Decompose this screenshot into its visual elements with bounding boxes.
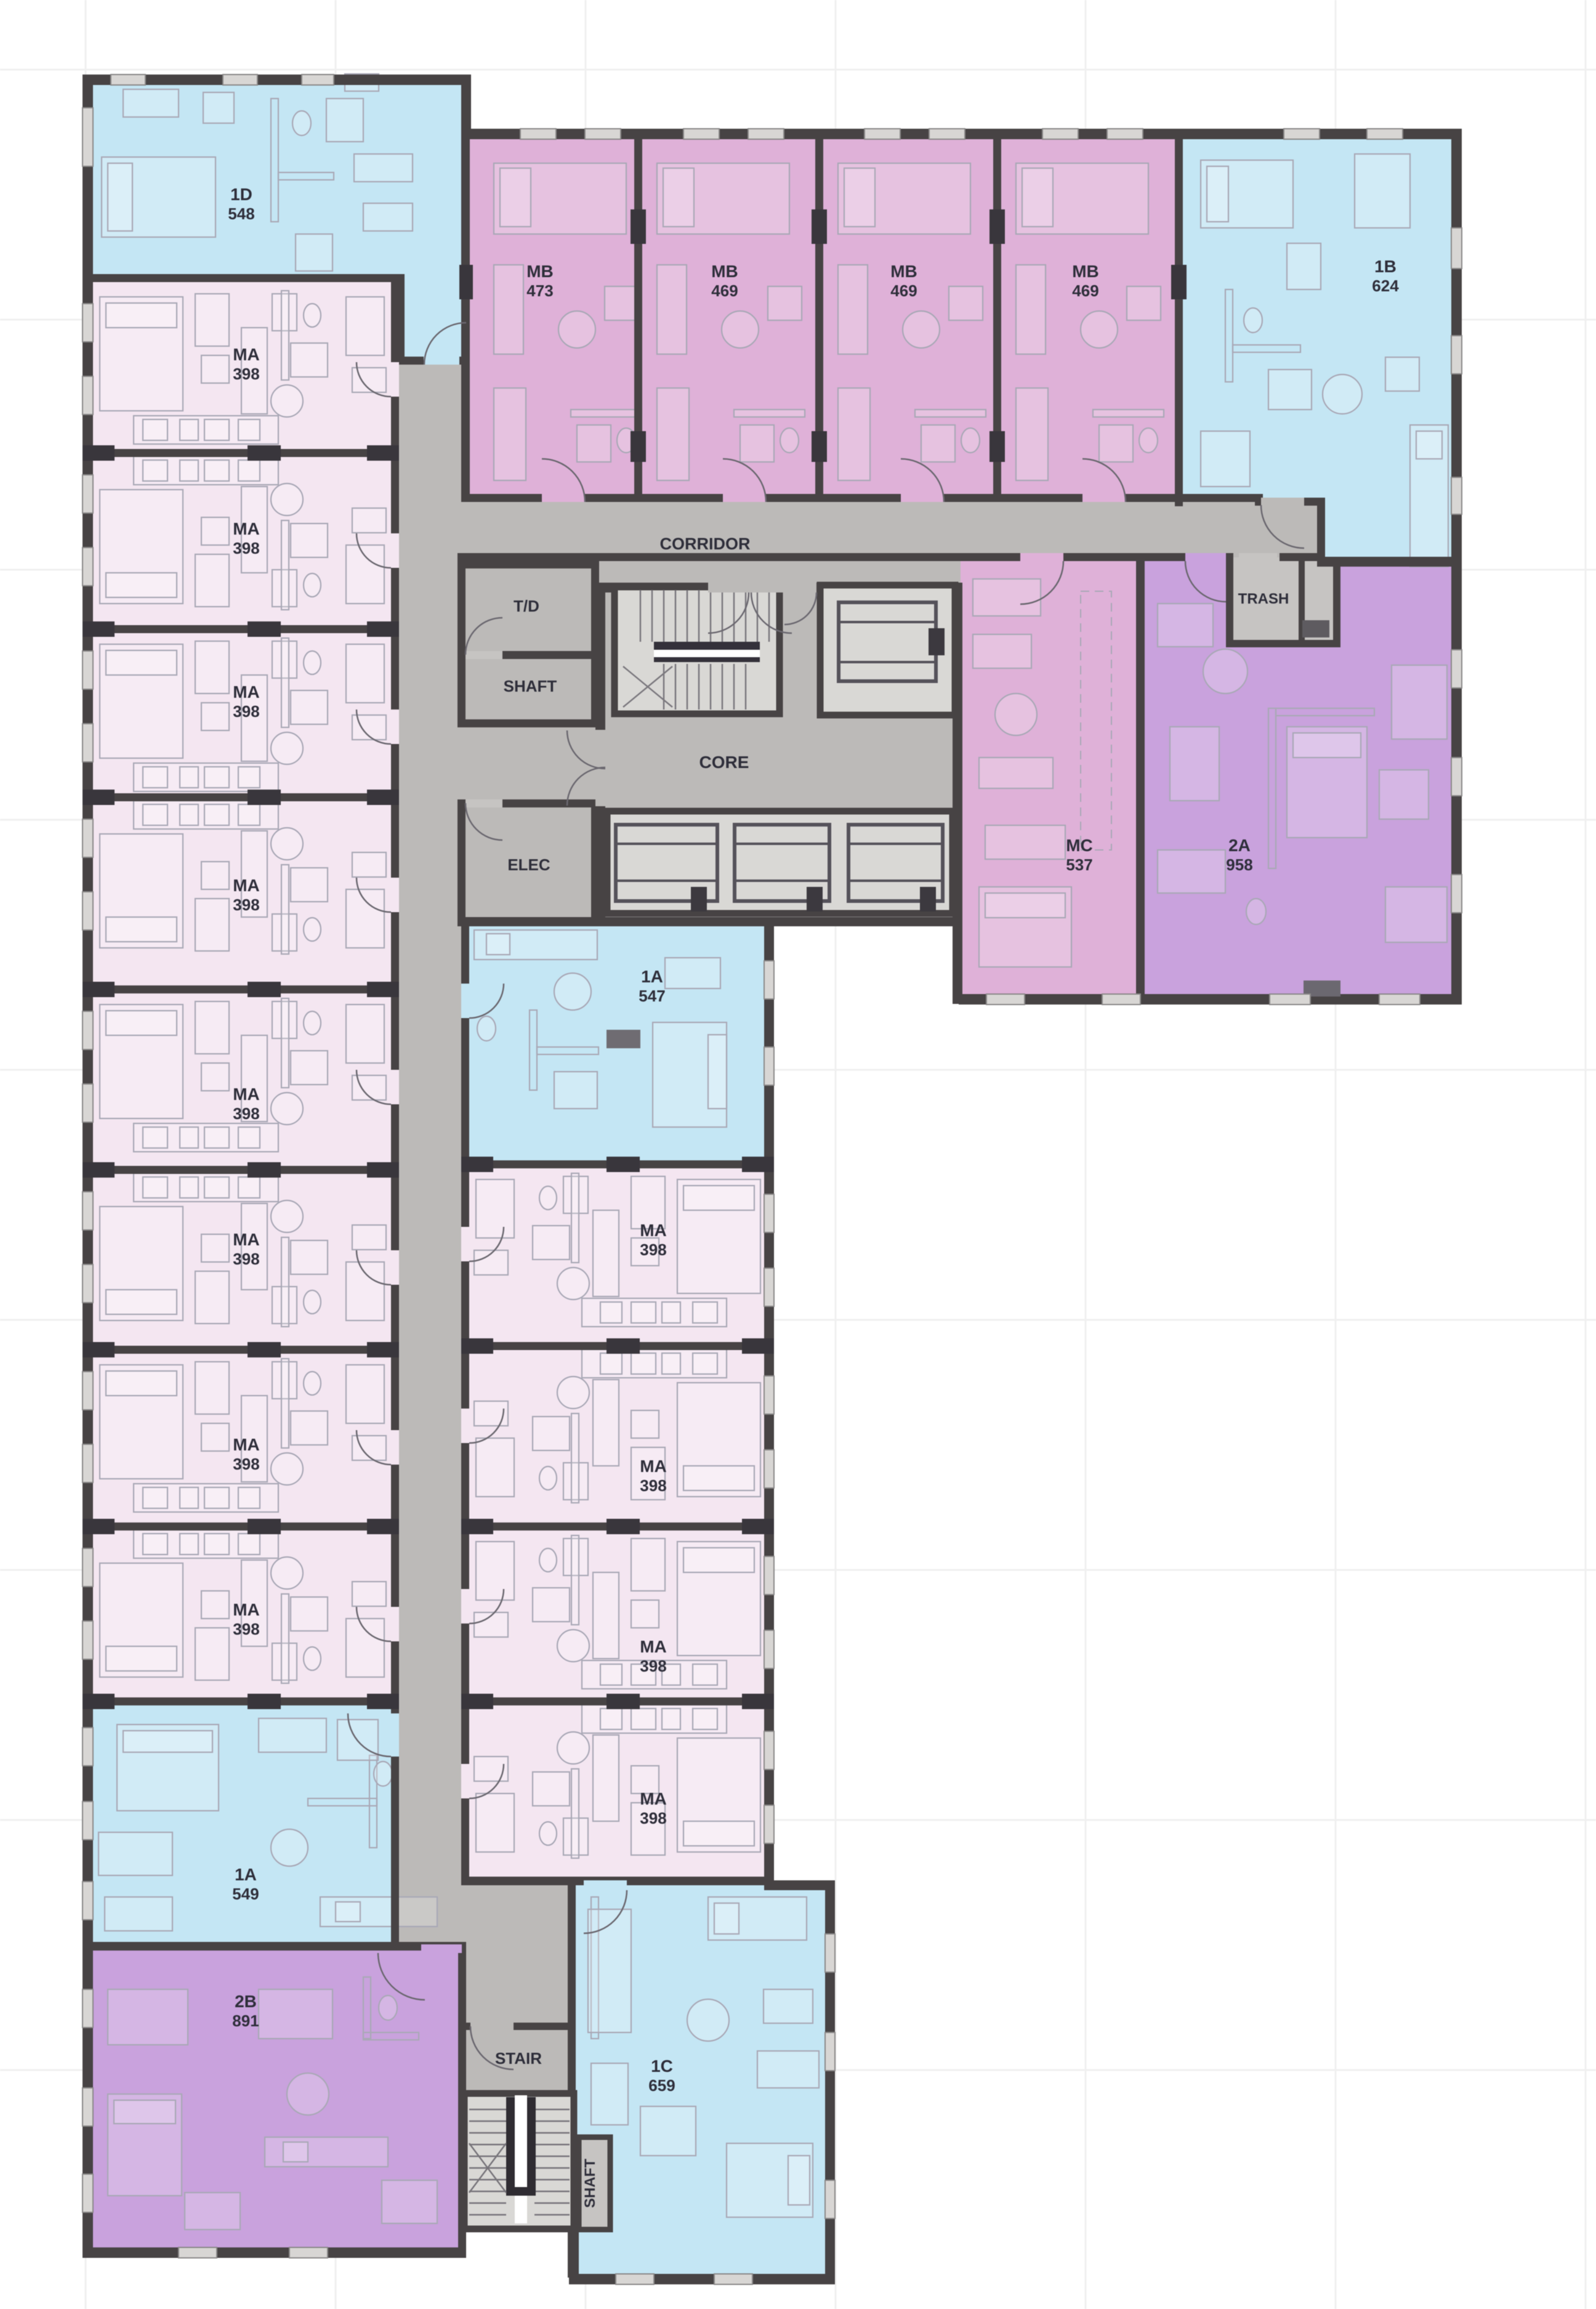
svg-text:958: 958 bbox=[1226, 855, 1252, 874]
svg-text:398: 398 bbox=[233, 1104, 259, 1123]
svg-text:398: 398 bbox=[640, 1240, 666, 1259]
svg-text:TRASH: TRASH bbox=[1238, 591, 1289, 607]
svg-text:SHAFT: SHAFT bbox=[582, 2159, 598, 2208]
svg-text:MB: MB bbox=[1072, 262, 1099, 281]
svg-text:469: 469 bbox=[890, 281, 917, 300]
svg-text:MB: MB bbox=[526, 262, 554, 281]
svg-text:1C: 1C bbox=[651, 2056, 673, 2076]
svg-text:MA: MA bbox=[640, 1789, 667, 1808]
svg-text:1D: 1D bbox=[230, 185, 252, 204]
svg-text:473: 473 bbox=[526, 281, 553, 300]
svg-text:MA: MA bbox=[233, 1230, 260, 1249]
svg-text:891: 891 bbox=[232, 2012, 259, 2030]
svg-text:MB: MB bbox=[890, 262, 917, 281]
svg-text:548: 548 bbox=[228, 204, 254, 223]
svg-text:STAIR: STAIR bbox=[495, 2049, 542, 2068]
svg-text:398: 398 bbox=[233, 702, 259, 721]
svg-text:CORRIDOR: CORRIDOR bbox=[660, 535, 751, 553]
svg-text:MA: MA bbox=[233, 682, 260, 702]
svg-text:469: 469 bbox=[1072, 281, 1098, 300]
svg-text:MA: MA bbox=[233, 1085, 260, 1104]
svg-text:398: 398 bbox=[640, 1657, 666, 1675]
svg-text:MA: MA bbox=[640, 1221, 667, 1240]
svg-text:MA: MA bbox=[233, 876, 260, 895]
svg-text:ELEC: ELEC bbox=[507, 855, 550, 874]
svg-text:MB: MB bbox=[711, 262, 738, 281]
svg-text:469: 469 bbox=[711, 281, 738, 300]
svg-text:MA: MA bbox=[233, 1435, 260, 1454]
svg-text:CORE: CORE bbox=[699, 753, 749, 772]
svg-text:MA: MA bbox=[640, 1637, 667, 1656]
svg-text:659: 659 bbox=[648, 2076, 675, 2095]
svg-text:MC: MC bbox=[1066, 836, 1093, 855]
svg-text:398: 398 bbox=[233, 896, 259, 914]
svg-text:398: 398 bbox=[233, 539, 259, 557]
svg-text:MA: MA bbox=[233, 1600, 260, 1619]
svg-text:1A: 1A bbox=[235, 1865, 257, 1884]
svg-text:547: 547 bbox=[639, 987, 665, 1005]
svg-text:SHAFT: SHAFT bbox=[504, 677, 557, 695]
svg-text:549: 549 bbox=[232, 1885, 259, 1903]
svg-text:398: 398 bbox=[233, 365, 259, 383]
svg-text:1B: 1B bbox=[1374, 257, 1396, 276]
svg-text:MA: MA bbox=[233, 345, 260, 364]
svg-text:398: 398 bbox=[640, 1809, 666, 1827]
svg-text:T/D: T/D bbox=[514, 597, 539, 615]
svg-text:624: 624 bbox=[1372, 277, 1399, 295]
svg-text:398: 398 bbox=[640, 1476, 666, 1495]
svg-text:2B: 2B bbox=[235, 1992, 257, 2011]
svg-text:537: 537 bbox=[1066, 855, 1092, 874]
svg-text:1A: 1A bbox=[641, 967, 663, 986]
svg-text:398: 398 bbox=[233, 1455, 259, 1473]
svg-text:MA: MA bbox=[233, 519, 260, 538]
svg-text:2A: 2A bbox=[1228, 836, 1251, 855]
svg-text:MA: MA bbox=[640, 1457, 667, 1476]
svg-text:398: 398 bbox=[233, 1620, 259, 1638]
svg-text:398: 398 bbox=[233, 1250, 259, 1268]
